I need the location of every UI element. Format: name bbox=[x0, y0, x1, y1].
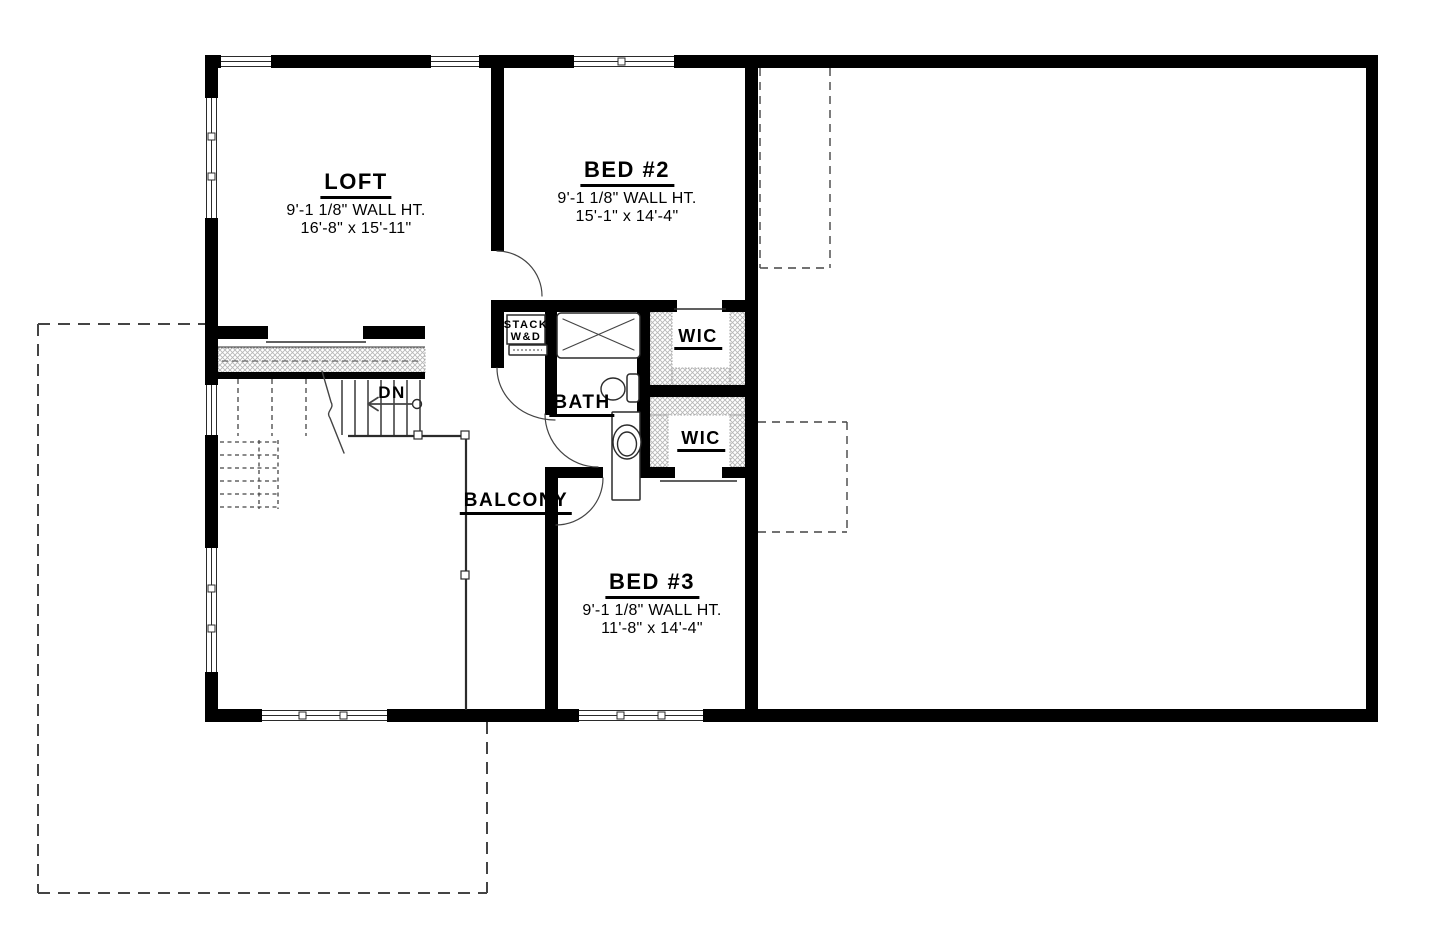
kneewall-hatch bbox=[650, 397, 745, 415]
room-label-stack-wd: STACKW&D bbox=[504, 319, 549, 344]
stair-break-line bbox=[322, 371, 344, 453]
railing-post bbox=[461, 571, 469, 579]
kneewall-hatch bbox=[730, 415, 745, 467]
room-label-loft: LOFT9'-1 1/8" WALL HT.16'-8" x 15'-11" bbox=[286, 170, 425, 237]
shower bbox=[557, 313, 640, 358]
kneewall-hatch bbox=[650, 312, 672, 385]
railing-post bbox=[461, 431, 469, 439]
room-label-bed-3: BED #39'-1 1/8" WALL HT.11'-8" x 14'-4" bbox=[582, 570, 721, 637]
kneewall-hatch bbox=[650, 415, 668, 467]
window-mullion bbox=[208, 173, 215, 180]
wall-segment bbox=[218, 372, 425, 379]
room-label-balcony: BALCONY bbox=[460, 490, 572, 518]
window-mullion bbox=[299, 712, 306, 719]
room-label-text: W&D bbox=[504, 331, 549, 343]
wall-segment bbox=[491, 68, 504, 251]
floor-plan-sheet: LOFT9'-1 1/8" WALL HT.16'-8" x 15'-11"BE… bbox=[0, 0, 1445, 951]
room-label-stairs-dn: DN bbox=[378, 383, 406, 402]
window-mullion bbox=[340, 712, 347, 719]
room-label-bath: BATH bbox=[549, 392, 614, 420]
toilet-tank bbox=[627, 374, 639, 402]
room-label-text: STACK bbox=[504, 319, 549, 331]
room-label-wic-lower: WIC bbox=[677, 428, 725, 455]
room-label-text: DN bbox=[378, 383, 406, 402]
window-mullion bbox=[617, 712, 624, 719]
room-label-text: BALCONY bbox=[460, 490, 572, 515]
wall-segment bbox=[637, 467, 675, 478]
room-label-text: 11'-8" x 14'-4" bbox=[582, 620, 721, 638]
wall-segment bbox=[722, 300, 758, 312]
window-mullion bbox=[658, 712, 665, 719]
room-label-bed-2: BED #29'-1 1/8" WALL HT.15'-1" x 14'-4" bbox=[557, 158, 696, 225]
railing-post bbox=[414, 431, 422, 439]
door-swing-bath bbox=[545, 414, 598, 467]
window-mullion bbox=[208, 585, 215, 592]
room-label-text: 15'-1" x 14'-4" bbox=[557, 208, 696, 226]
window-mullion bbox=[208, 133, 215, 140]
wall-segment bbox=[213, 326, 268, 339]
room-label-text: WIC bbox=[674, 326, 722, 350]
window-mullion bbox=[208, 625, 215, 632]
wall-segment bbox=[722, 467, 758, 478]
room-label-text: 16'-8" x 15'-11" bbox=[286, 220, 425, 238]
wall-segment bbox=[491, 312, 504, 368]
room-label-text: BATH bbox=[549, 392, 614, 417]
kneewall-hatch bbox=[730, 312, 745, 385]
room-label-text: 9'-1 1/8" WALL HT. bbox=[582, 602, 721, 620]
wall-segment bbox=[643, 385, 758, 397]
room-label-text: LOFT bbox=[320, 170, 391, 199]
window-mullion bbox=[618, 58, 625, 65]
room-label-text: 9'-1 1/8" WALL HT. bbox=[557, 190, 696, 208]
room-label-text: WIC bbox=[677, 428, 725, 452]
door-swing-bed2 bbox=[497, 251, 542, 296]
room-label-text: BED #3 bbox=[605, 570, 699, 599]
room-label-wic-upper: WIC bbox=[674, 326, 722, 353]
wall-segment bbox=[363, 326, 425, 339]
room-label-text: BED #2 bbox=[580, 158, 674, 187]
kneewall-hatch bbox=[672, 368, 730, 385]
wall-segment bbox=[1366, 55, 1378, 722]
room-label-text: 9'-1 1/8" WALL HT. bbox=[286, 202, 425, 220]
sink-basin-inner bbox=[618, 432, 637, 456]
floor-plan-drawing bbox=[0, 0, 1445, 951]
wall-segment bbox=[205, 55, 1378, 68]
wall-segment bbox=[545, 467, 603, 478]
